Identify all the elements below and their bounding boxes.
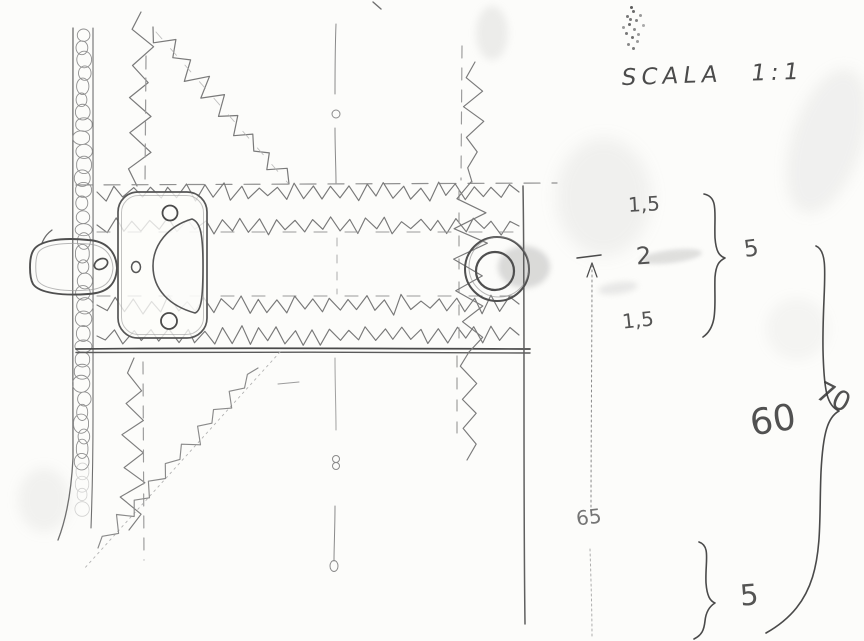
top-tick-mark <box>373 2 381 9</box>
centerline-top-segment <box>335 24 336 94</box>
center-construction-line <box>278 24 340 572</box>
buckle-fitting <box>30 192 207 338</box>
centerline-upper-segment <box>335 128 336 183</box>
small-dash-mark <box>278 382 299 384</box>
wall-section <box>58 28 93 540</box>
centerline-circle-mark-top <box>332 110 340 118</box>
brace-bottom <box>694 542 715 639</box>
mid-vertical-zigzag-line <box>454 46 488 460</box>
top-vertical-zigzag <box>129 12 154 186</box>
wall-left-edge <box>58 28 73 540</box>
centerline-8-mark-a <box>333 456 340 463</box>
mid-dashed-top <box>461 46 462 180</box>
dimension-label-60: 60 <box>747 397 799 445</box>
plate-hole-top <box>163 206 178 221</box>
lower-diagonal-dotted-line <box>83 352 280 570</box>
wall-hatch-fade <box>75 463 89 516</box>
band-bottom-line-1 <box>76 348 530 349</box>
dimension-top-tick <box>577 255 601 258</box>
dimension-line-lower <box>590 549 592 637</box>
centerline-bottom-segment <box>334 506 335 561</box>
scanned-sketch-page: SCALA 1:1 1,5 2 1,5 5 60 70 65 5 <box>0 0 864 641</box>
brace-top-stack <box>703 194 725 337</box>
dimension-line-65 <box>591 265 592 509</box>
centerline-end-loop <box>330 561 338 572</box>
centerline-8-mark-b <box>333 463 340 470</box>
band-top-dashed-line <box>76 183 557 185</box>
grommet-inner-ring <box>476 252 514 290</box>
centerline-lower-segment <box>335 358 336 430</box>
top-gusset <box>129 2 382 186</box>
lower-vertical-zigzag <box>120 358 145 530</box>
mid-zigzag-bottom <box>460 352 476 460</box>
dimension-label-65: 65 <box>575 504 603 531</box>
loop-hole <box>92 256 109 271</box>
dimension-graphics <box>577 194 839 639</box>
lower-gusset <box>83 352 280 570</box>
lower-vertical-dashed-line <box>143 362 144 560</box>
grommet-outer-ring-ghost <box>469 237 529 297</box>
dimension-label-5-bottom: 5 <box>739 577 760 612</box>
grommet-outer-ring <box>465 237 529 301</box>
top-diagonal-zigzag <box>153 27 289 184</box>
strap-loop-inner-stroke <box>36 243 113 290</box>
mid-zigzag-top <box>464 62 484 182</box>
lower-diagonal-zigzag <box>98 368 258 548</box>
pencil-drawing <box>0 0 864 641</box>
dimension-label-2: 2 <box>635 242 652 271</box>
wall-hatch <box>73 29 94 470</box>
band-bottom-line-2 <box>76 352 530 353</box>
strap-loop-outline <box>30 239 117 295</box>
dimension-label-1-5-top: 1,5 <box>627 191 660 217</box>
grommet <box>465 237 529 301</box>
dimension-label-1-5-bottom: 1,5 <box>621 306 655 333</box>
plate-hole-bottom <box>161 313 177 329</box>
